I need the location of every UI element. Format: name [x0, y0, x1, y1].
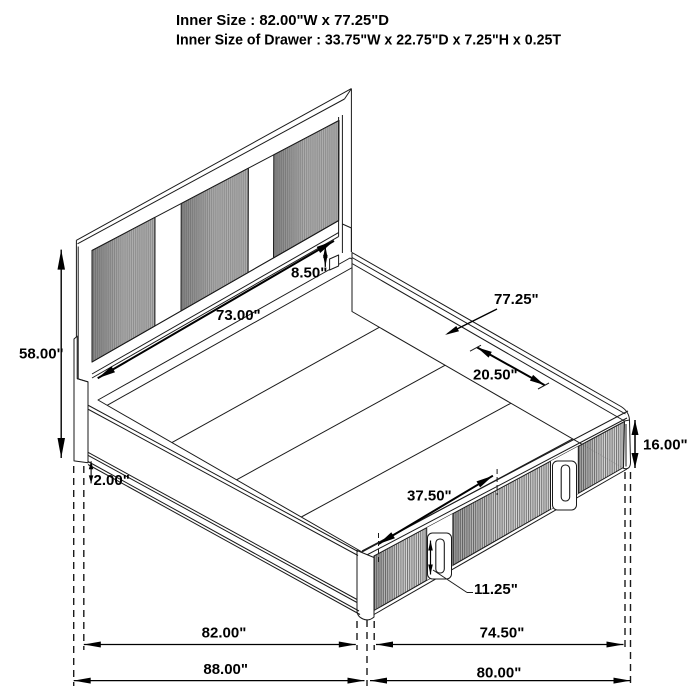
svg-text:88.00": 88.00": [203, 661, 248, 678]
svg-text:16.00": 16.00": [643, 437, 688, 454]
svg-text:37.50": 37.50": [407, 488, 452, 505]
svg-text:82.00": 82.00": [202, 625, 247, 642]
svg-text:11.25": 11.25": [474, 581, 518, 598]
svg-text:73.00": 73.00": [216, 307, 261, 324]
svg-text:8.50": 8.50": [291, 265, 327, 282]
svg-text:58.00": 58.00": [19, 346, 64, 363]
svg-text:80.00": 80.00": [477, 665, 522, 682]
svg-text:20.50": 20.50": [473, 367, 518, 384]
svg-text:74.50": 74.50": [480, 625, 525, 642]
svg-text:77.25": 77.25": [494, 291, 539, 308]
svg-text:2.00": 2.00": [94, 472, 130, 489]
svg-text:Inner Size of Drawer : 33.75"W: Inner Size of Drawer : 33.75"W x 22.75"D…: [176, 32, 561, 49]
svg-text:Inner Size : 82.00"W x 77.25"D: Inner Size : 82.00"W x 77.25"D: [176, 12, 389, 29]
